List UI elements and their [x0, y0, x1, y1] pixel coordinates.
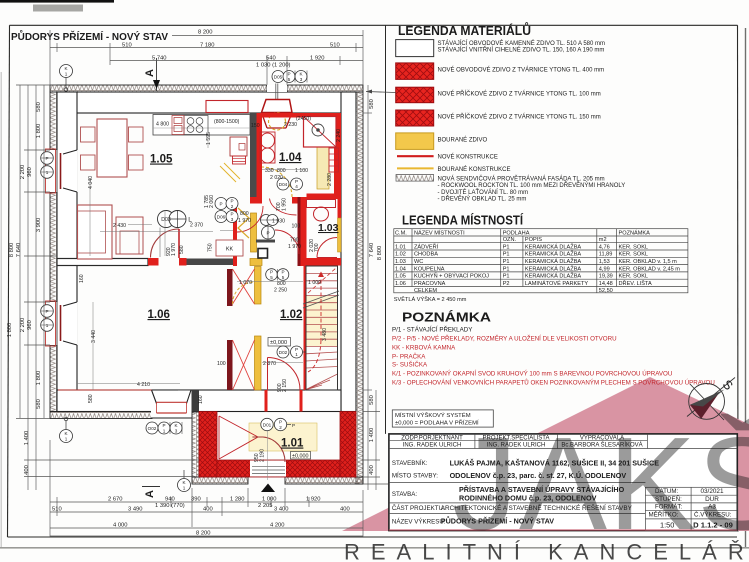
svg-text:1 030 (1 200): 1 030 (1 200): [256, 63, 291, 69]
svg-text:P1: P1: [503, 244, 510, 250]
svg-text:1 000: 1 000: [262, 497, 277, 503]
svg-text:510: 510: [330, 43, 340, 49]
svg-text:1.04: 1.04: [279, 152, 302, 164]
svg-text:940: 940: [165, 497, 175, 503]
svg-text:2 200: 2 200: [20, 165, 26, 180]
svg-text:52,50: 52,50: [599, 288, 613, 294]
svg-text:P: P: [292, 423, 295, 428]
svg-text:P: P: [219, 202, 222, 207]
svg-text:MÍSTO STAVBY:: MÍSTO STAVBY:: [392, 473, 438, 480]
svg-text:KER. SOKL: KER. SOKL: [619, 252, 649, 258]
svg-text:STAVEBNÍK:: STAVEBNÍK:: [392, 460, 428, 467]
svg-text:19,39: 19,39: [599, 274, 613, 280]
svg-text:150: 150: [251, 123, 260, 129]
svg-text:1 400: 1 400: [24, 431, 30, 446]
svg-text:K/3 - OPLECHOVÁNÍ VENKOVNÍCH P: K/3 - OPLECHOVÁNÍ VENKOVNÍCH PARAPETŮ OK…: [392, 380, 715, 387]
svg-text:1 970: 1 970: [238, 218, 251, 224]
svg-text:390: 390: [191, 497, 201, 503]
svg-text:(800-1500): (800-1500): [214, 119, 240, 125]
svg-text:1 920: 1 920: [310, 56, 325, 62]
svg-text:P: P: [230, 199, 233, 204]
svg-text:1.05: 1.05: [150, 154, 173, 166]
svg-text:D02: D02: [279, 350, 288, 355]
svg-text:2 280: 2 280: [327, 173, 333, 186]
svg-text:800: 800: [277, 168, 286, 174]
svg-text:4: 4: [295, 184, 298, 189]
svg-text:2 020: 2 020: [270, 175, 283, 181]
svg-text:ZÁDVEŘÍ: ZÁDVEŘÍ: [414, 242, 439, 250]
svg-text:3 440: 3 440: [91, 330, 97, 343]
svg-text:3 900: 3 900: [36, 218, 42, 233]
svg-text:KERAMICKÁ DLAŽBA: KERAMICKÁ DLAŽBA: [525, 264, 582, 272]
svg-text:NOVÉ PŘÍČKOVÉ ZDIVO Z TVÁRNICE: NOVÉ PŘÍČKOVÉ ZDIVO Z TVÁRNICE YTONG TL.…: [438, 89, 601, 97]
svg-text:POZNÁMKA: POZNÁMKA: [402, 310, 492, 325]
svg-text:1: 1: [295, 352, 298, 357]
svg-text:1 930: 1 930: [272, 219, 285, 225]
svg-text:PŮDORYS PŘÍZEMÍ - NOVÝ STAV: PŮDORYS PŘÍZEMÍ - NOVÝ STAV: [11, 29, 168, 43]
svg-text:STAVBA:: STAVBA:: [392, 491, 417, 498]
svg-text:P/2 - P/5 - NOVÉ PŘEKLADY, ROZ: P/2 - P/5 - NOVÉ PŘEKLADY, ROZMĚRY A ULO…: [392, 335, 617, 343]
svg-text:BOURANÉ ZDIVO: BOURANÉ ZDIVO: [438, 137, 488, 144]
svg-text:KK - KRBOVÁ KAMNA: KK - KRBOVÁ KAMNA: [392, 345, 456, 352]
svg-text:A: A: [144, 69, 156, 77]
svg-text:SVĚTLÁ VÝŠKA = 2 450 mm: SVĚTLÁ VÝŠKA = 2 450 mm: [394, 295, 467, 303]
svg-text:KER. SOKL: KER. SOKL: [619, 274, 649, 280]
svg-text:2 250: 2 250: [274, 288, 287, 294]
svg-text:REALITNÍ KANCELÁŘ: REALITNÍ KANCELÁŘ: [344, 540, 749, 562]
svg-text:2: 2: [279, 425, 282, 430]
svg-text:1 595: 1 595: [206, 132, 212, 145]
svg-text:2 870: 2 870: [263, 361, 276, 367]
svg-text:KER. OBKLAD v. 2,45 m: KER. OBKLAD v. 2,45 m: [619, 266, 681, 272]
svg-text:m2: m2: [599, 237, 607, 243]
svg-text:580: 580: [369, 395, 375, 405]
svg-text:5: 5: [270, 275, 273, 280]
svg-text:P: P: [230, 212, 233, 217]
svg-text:2 240: 2 240: [336, 129, 342, 142]
svg-text:1.01: 1.01: [281, 438, 304, 450]
svg-text:BOURANÉ KONSTRUKCE: BOURANÉ KONSTRUKCE: [438, 166, 511, 173]
svg-text:1.01: 1.01: [395, 244, 406, 250]
svg-text:D01: D01: [263, 423, 272, 428]
svg-text:P1: P1: [503, 259, 510, 265]
svg-text:330: 330: [265, 168, 274, 174]
svg-text:1.04: 1.04: [395, 266, 406, 272]
svg-text:100: 100: [217, 361, 226, 367]
svg-text:KERAMICKÁ DLAŽBA: KERAMICKÁ DLAŽBA: [525, 242, 582, 250]
svg-text:P: P: [270, 270, 273, 275]
svg-text:PRACOVNA: PRACOVNA: [414, 281, 446, 287]
svg-text:KER. SOKL: KER. SOKL: [619, 244, 649, 250]
svg-text:1: 1: [183, 486, 186, 491]
svg-text:1: 1: [163, 429, 166, 434]
svg-text:POZNÁMKA: POZNÁMKA: [619, 229, 651, 236]
svg-text:1 950: 1 950: [282, 198, 288, 211]
svg-text:P: P: [279, 420, 282, 425]
svg-text:CELKEM: CELKEM: [414, 288, 437, 294]
svg-text:400: 400: [24, 465, 30, 475]
svg-text:P: P: [281, 270, 284, 275]
svg-text:1 100: 1 100: [295, 168, 308, 174]
svg-text:1.02: 1.02: [395, 252, 406, 258]
svg-text:NOVÉ OBVODOVÉ ZDIVO Z TVÁRNICE: NOVÉ OBVODOVÉ ZDIVO Z TVÁRNICE YTONG TL.…: [438, 66, 605, 73]
svg-text:8 800: 8 800: [9, 243, 15, 258]
svg-text:2 430: 2 430: [113, 223, 126, 229]
svg-text:400: 400: [340, 507, 350, 513]
svg-text:(2450): (2450): [296, 116, 311, 122]
svg-text:1: 1: [46, 170, 49, 175]
svg-text:LEGENDA MATERIÁLŮ: LEGENDA MATERIÁLŮ: [398, 22, 531, 38]
svg-text:7 640: 7 640: [369, 243, 375, 258]
svg-text:NOVÁ SENDVIČOVÁ PROVĚTRÁVANÁ F: NOVÁ SENDVIČOVÁ PROVĚTRÁVANÁ FASÁDA TL. …: [438, 174, 605, 182]
svg-text:510: 510: [122, 43, 132, 49]
svg-text:800: 800: [240, 211, 249, 217]
svg-text:2 230: 2 230: [284, 122, 297, 128]
svg-text:JAKŠ: JAKŠ: [452, 410, 749, 557]
svg-text:1.03: 1.03: [395, 259, 406, 265]
svg-text:7 640: 7 640: [16, 243, 22, 258]
svg-text:P1: P1: [503, 266, 510, 272]
svg-text:D03: D03: [161, 217, 171, 223]
svg-text:C.M.: C.M.: [395, 230, 407, 236]
svg-text:ČÁST PROJEKTU:: ČÁST PROJEKTU:: [392, 505, 445, 512]
svg-text:D04: D04: [279, 182, 288, 187]
svg-text:4,99: 4,99: [599, 266, 610, 272]
svg-text:8 200: 8 200: [198, 30, 213, 36]
svg-text:580: 580: [179, 245, 185, 254]
svg-text:1 970: 1 970: [171, 243, 177, 256]
svg-text:P/1 - STÁVAJÍCÍ PŘEKLADY: P/1 - STÁVAJÍCÍ PŘEKLADY: [392, 326, 472, 334]
svg-text:2 020: 2 020: [309, 239, 315, 252]
svg-text:S- SUŠIČKA: S- SUŠIČKA: [392, 362, 428, 369]
svg-text:D06: D06: [217, 215, 226, 220]
svg-text:2 370: 2 370: [190, 223, 203, 229]
svg-text:1,53: 1,53: [599, 259, 610, 265]
svg-text:3: 3: [300, 77, 303, 82]
svg-text:1 970: 1 970: [288, 244, 301, 250]
svg-text:- ROCKWOOL ROCKTON TL. 100 mm: - ROCKWOOL ROCKTON TL. 100 mm MEZI DŘEVĚ…: [438, 181, 626, 189]
svg-text:2 200: 2 200: [20, 318, 26, 333]
svg-text:1 070: 1 070: [239, 280, 252, 286]
svg-text:2 150: 2 150: [282, 379, 288, 392]
svg-text:14,48: 14,48: [599, 281, 613, 287]
svg-text:800: 800: [277, 281, 286, 287]
svg-text:5: 5: [282, 275, 285, 280]
svg-text:3 400: 3 400: [274, 507, 289, 513]
svg-text:P: P: [162, 423, 165, 428]
svg-text:1 800: 1 800: [36, 371, 42, 386]
svg-text:KUCHYŇ + OBÝVACÍ POKOJ: KUCHYŇ + OBÝVACÍ POKOJ: [414, 273, 489, 280]
svg-text:±0,000: ±0,000: [292, 454, 308, 460]
svg-text:P: P: [45, 309, 48, 314]
svg-text:STÁVAJÍCÍ VNITŘNÍ CIHELNÉ ZDIV: STÁVAJÍCÍ VNITŘNÍ CIHELNÉ ZDIVO TL. 150,…: [438, 46, 605, 54]
svg-text:8 200: 8 200: [196, 531, 211, 537]
svg-text:KERAMICKÁ DLAŽBA: KERAMICKÁ DLAŽBA: [525, 257, 582, 265]
svg-text:O02: O02: [148, 426, 157, 431]
svg-text:8 800: 8 800: [377, 246, 383, 261]
svg-text:- DVOJITÉ LAŤOVÁNÍ TL. 80 mm: - DVOJITÉ LAŤOVÁNÍ TL. 80 mm: [438, 188, 529, 196]
svg-text:K/1 - POZINKOVANÝ OKAPNÍ SVOD: K/1 - POZINKOVANÝ OKAPNÍ SVOD KRUHOVÝ 10…: [392, 371, 672, 378]
svg-text:2 190: 2 190: [260, 449, 266, 462]
svg-text:7 180: 7 180: [200, 43, 215, 49]
svg-text:2 205: 2 205: [258, 503, 273, 509]
svg-text:KERAMICKÁ DLAŽBA: KERAMICKÁ DLAŽBA: [525, 250, 582, 258]
svg-text:1: 1: [46, 323, 49, 328]
svg-text:1 000: 1 000: [308, 280, 321, 286]
svg-text:POPIS: POPIS: [525, 237, 542, 243]
svg-text:1 390 (770): 1 390 (770): [155, 503, 185, 509]
svg-text:1.05: 1.05: [395, 274, 406, 280]
svg-text:P: P: [45, 156, 48, 161]
svg-text:KK: KK: [226, 247, 234, 253]
svg-text:P: P: [266, 231, 269, 236]
svg-text:1: 1: [65, 72, 68, 77]
svg-text:4 040: 4 040: [88, 176, 94, 189]
svg-text:1.02: 1.02: [280, 309, 302, 321]
svg-text:3: 3: [231, 217, 234, 222]
svg-text:400: 400: [369, 465, 375, 475]
svg-text:NOVÉ KONSTRUKCE: NOVÉ KONSTRUKCE: [438, 154, 498, 161]
svg-text:160: 160: [79, 274, 85, 283]
svg-text:2: 2: [231, 204, 234, 209]
svg-text:580: 580: [369, 99, 375, 109]
svg-text:3 490: 3 490: [128, 507, 143, 513]
svg-text:P1: P1: [503, 252, 510, 258]
svg-text:NÁZEV VÝKRESU:: NÁZEV VÝKRESU:: [392, 518, 446, 525]
svg-text:1.06: 1.06: [395, 281, 406, 287]
svg-text:5: 5: [288, 77, 291, 82]
svg-text:1 800: 1 800: [7, 323, 13, 338]
svg-text:D05: D05: [274, 75, 283, 80]
svg-text:960: 960: [27, 320, 33, 330]
svg-text:LEGENDA MÍSTNOSTÍ: LEGENDA MÍSTNOSTÍ: [402, 213, 523, 228]
svg-text:540: 540: [266, 56, 276, 62]
svg-text:KOUPELNA: KOUPELNA: [414, 266, 445, 272]
svg-text:STÁVAJÍCÍ OBVODOVÉ KAMENNÉ ZDI: STÁVAJÍCÍ OBVODOVÉ KAMENNÉ ZDIVO TL. 510…: [438, 40, 606, 47]
svg-text:KERAMICKÁ DLAŽBA: KERAMICKÁ DLAŽBA: [525, 272, 582, 280]
svg-text:KER. OBKLAD v. 1,5 m: KER. OBKLAD v. 1,5 m: [619, 259, 678, 265]
svg-text:1: 1: [65, 437, 68, 442]
svg-text:3: 3: [175, 429, 178, 434]
svg-text:5 740: 5 740: [152, 56, 167, 62]
svg-text:A: A: [144, 490, 156, 498]
svg-text:3 480: 3 480: [322, 328, 328, 341]
svg-text:4 210: 4 210: [137, 382, 150, 388]
svg-text:4 200: 4 200: [270, 523, 285, 529]
svg-text:160: 160: [198, 395, 204, 404]
svg-text:11,89: 11,89: [599, 252, 613, 258]
svg-text:NÁZEV MÍSTNOSTI: NÁZEV MÍSTNOSTI: [414, 229, 465, 236]
svg-text:580: 580: [36, 102, 42, 112]
svg-text:P- PRAČKA: P- PRAČKA: [392, 353, 426, 360]
svg-text:1 920: 1 920: [306, 497, 321, 503]
svg-text:P1: P1: [503, 274, 510, 280]
svg-text:CHODBA: CHODBA: [414, 252, 438, 258]
svg-text:510: 510: [52, 507, 62, 513]
svg-text:WC: WC: [414, 259, 423, 265]
svg-text:580: 580: [36, 399, 42, 409]
svg-text:NOVÉ PŘÍČKOVÉ ZDIVO Z TVÁRNICE: NOVÉ PŘÍČKOVÉ ZDIVO Z TVÁRNICE YTONG TL.…: [438, 113, 601, 121]
svg-text:2 060: 2 060: [209, 195, 215, 208]
svg-text:DŘEV. LIŠTA: DŘEV. LIŠTA: [619, 279, 653, 287]
svg-text:4 000: 4 000: [113, 523, 128, 529]
svg-text:LAMINÁTOVÉ PARKETY: LAMINÁTOVÉ PARKETY: [525, 280, 588, 287]
svg-text:1.03: 1.03: [318, 222, 339, 234]
svg-text:750: 750: [208, 243, 214, 252]
svg-text:1 800: 1 800: [36, 124, 42, 139]
svg-text:400: 400: [203, 507, 213, 513]
svg-text:2 670: 2 670: [108, 497, 123, 503]
svg-text:1.06: 1.06: [148, 309, 170, 321]
svg-text:PODLAHA: PODLAHA: [503, 230, 530, 236]
svg-text:P: P: [287, 72, 290, 77]
svg-text:- DŘEVĚNÝ OBKLAD TL. 25 mm: - DŘEVĚNÝ OBKLAD TL. 25 mm: [438, 194, 527, 202]
svg-text:700: 700: [290, 238, 299, 244]
svg-text:1 400: 1 400: [369, 428, 375, 443]
svg-text:P2: P2: [503, 281, 510, 287]
svg-text:960: 960: [27, 167, 33, 177]
svg-text:4,76: 4,76: [599, 244, 610, 250]
svg-text:4 800: 4 800: [156, 122, 169, 128]
svg-text:580: 580: [88, 394, 94, 403]
svg-text:100: 100: [292, 224, 301, 230]
svg-text:OZN.: OZN.: [503, 237, 517, 243]
svg-text:±0,000: ±0,000: [270, 340, 287, 346]
svg-text:1 280: 1 280: [230, 497, 245, 503]
